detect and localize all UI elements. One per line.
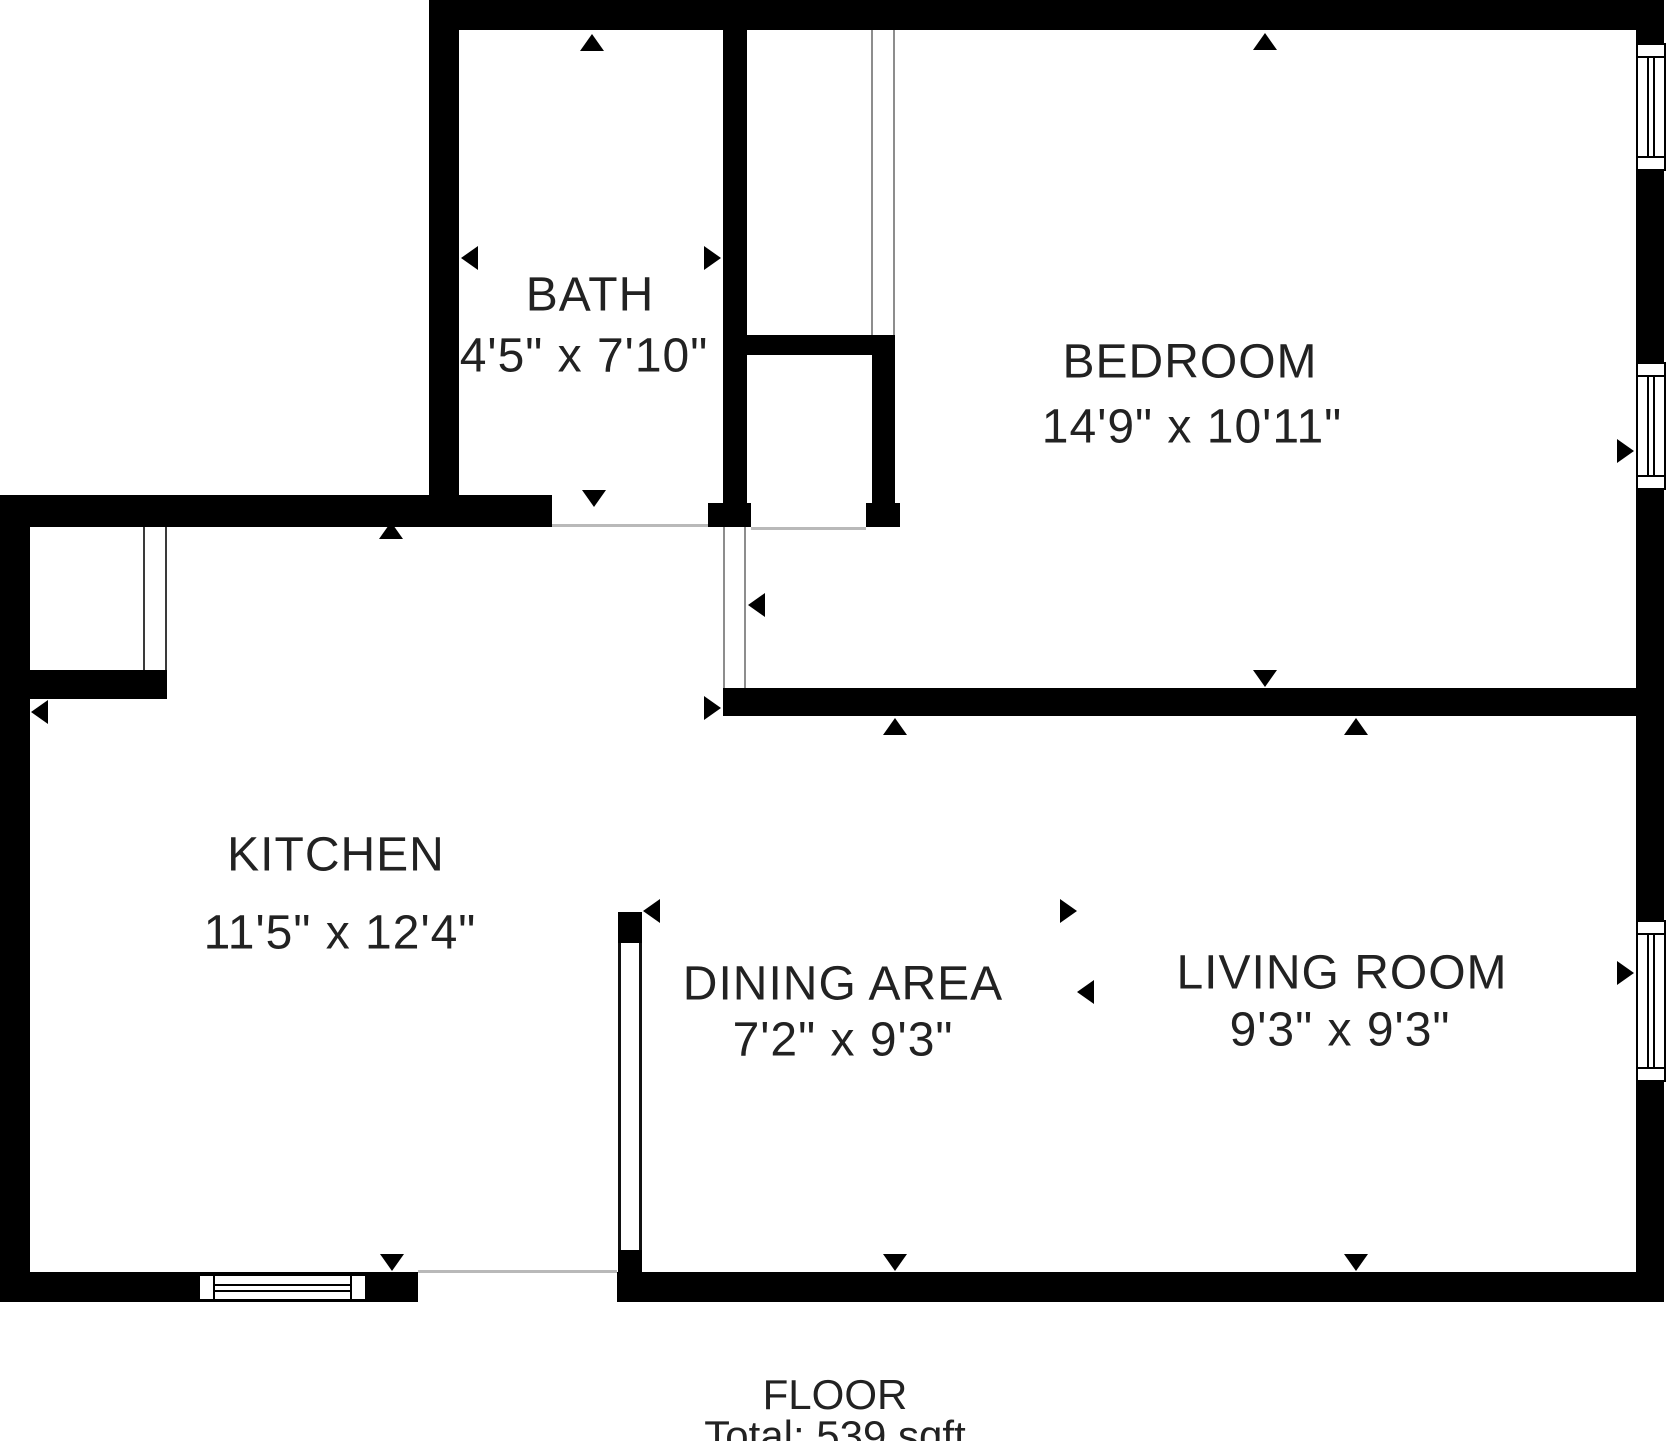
kitchen-window bbox=[198, 1274, 367, 1301]
marker-down-icon bbox=[380, 1254, 404, 1271]
room-label-living: LIVING ROOM bbox=[1176, 948, 1507, 1001]
wall-top bbox=[429, 0, 1664, 30]
marker-right-icon bbox=[704, 696, 721, 720]
room-label-bath: BATH bbox=[526, 270, 654, 323]
room-dimensions-bedroom: 14'9" x 10'11" bbox=[1042, 402, 1342, 455]
marker-up-icon bbox=[379, 522, 403, 539]
marker-down-icon bbox=[883, 1254, 907, 1271]
entry-threshold bbox=[418, 1270, 617, 1273]
pantry-opening bbox=[143, 527, 167, 670]
marker-down-icon bbox=[1344, 1254, 1368, 1271]
hall-threshold bbox=[751, 527, 866, 530]
room-label-bedroom: BEDROOM bbox=[1062, 337, 1317, 390]
window-glass-line bbox=[1647, 377, 1655, 475]
marker-right-icon bbox=[1060, 899, 1077, 923]
wall-closet-right bbox=[872, 335, 895, 503]
bedroom-window-upper bbox=[1636, 43, 1666, 171]
marker-up-icon bbox=[1253, 33, 1277, 50]
marker-down-icon bbox=[1253, 670, 1277, 687]
kitchen-dining-divider-opening bbox=[618, 943, 642, 1250]
wall-dining-top bbox=[723, 688, 1664, 716]
wall-right bbox=[1636, 0, 1664, 1302]
window-frame-line bbox=[1638, 1067, 1664, 1069]
marker-left-icon bbox=[461, 246, 478, 270]
marker-right-icon bbox=[1617, 961, 1634, 985]
room-label-kitchen: KITCHEN bbox=[227, 830, 445, 883]
window-glass-line bbox=[215, 1284, 350, 1292]
hall-kitchen-opening bbox=[723, 527, 746, 688]
living-room-window bbox=[1636, 920, 1666, 1082]
marker-up-icon bbox=[580, 34, 604, 51]
marker-left-icon bbox=[748, 593, 765, 617]
marker-left-icon bbox=[31, 700, 48, 724]
marker-right-icon bbox=[1617, 439, 1634, 463]
wall-bath-right bbox=[723, 0, 747, 503]
wall-divider-top-block bbox=[618, 912, 642, 943]
room-dimensions-dining: 7'2" x 9'3" bbox=[733, 1015, 954, 1068]
wall-left bbox=[0, 495, 30, 1302]
wall-bath-left bbox=[429, 0, 459, 527]
window-frame-line bbox=[350, 1276, 352, 1299]
bedroom-window-lower bbox=[1636, 362, 1666, 490]
marker-left-icon bbox=[1077, 980, 1094, 1004]
marker-left-icon bbox=[643, 899, 660, 923]
marker-up-icon bbox=[883, 718, 907, 735]
room-label-dining: DINING AREA bbox=[683, 959, 1003, 1012]
wall-bottom-main bbox=[617, 1272, 1664, 1302]
wall-bath-right-stub bbox=[708, 503, 751, 527]
marker-up-icon bbox=[1344, 718, 1368, 735]
bedroom-door-opening bbox=[871, 30, 895, 335]
room-dimensions-living: 9'3" x 9'3" bbox=[1230, 1005, 1451, 1058]
wall-closet-right-stub bbox=[866, 503, 900, 527]
room-dimensions-bath: 4'5" x 7'10" bbox=[460, 331, 709, 384]
wall-pantry-bottom bbox=[30, 670, 167, 699]
window-glass-line bbox=[1647, 935, 1655, 1067]
marker-right-icon bbox=[704, 246, 721, 270]
floor-total: Total: 539 sqft bbox=[704, 1412, 966, 1441]
marker-down-icon bbox=[582, 490, 606, 507]
window-frame-line bbox=[1638, 156, 1664, 158]
wall-kitchen-top bbox=[0, 495, 552, 527]
window-frame-line bbox=[1638, 475, 1664, 477]
window-glass-line bbox=[1647, 58, 1655, 156]
bath-door-threshold bbox=[552, 524, 708, 527]
room-dimensions-kitchen: 11'5" x 12'4" bbox=[204, 908, 477, 961]
floor-plan: BATH 4'5" x 7'10" BEDROOM 14'9" x 10'11"… bbox=[0, 0, 1668, 1441]
